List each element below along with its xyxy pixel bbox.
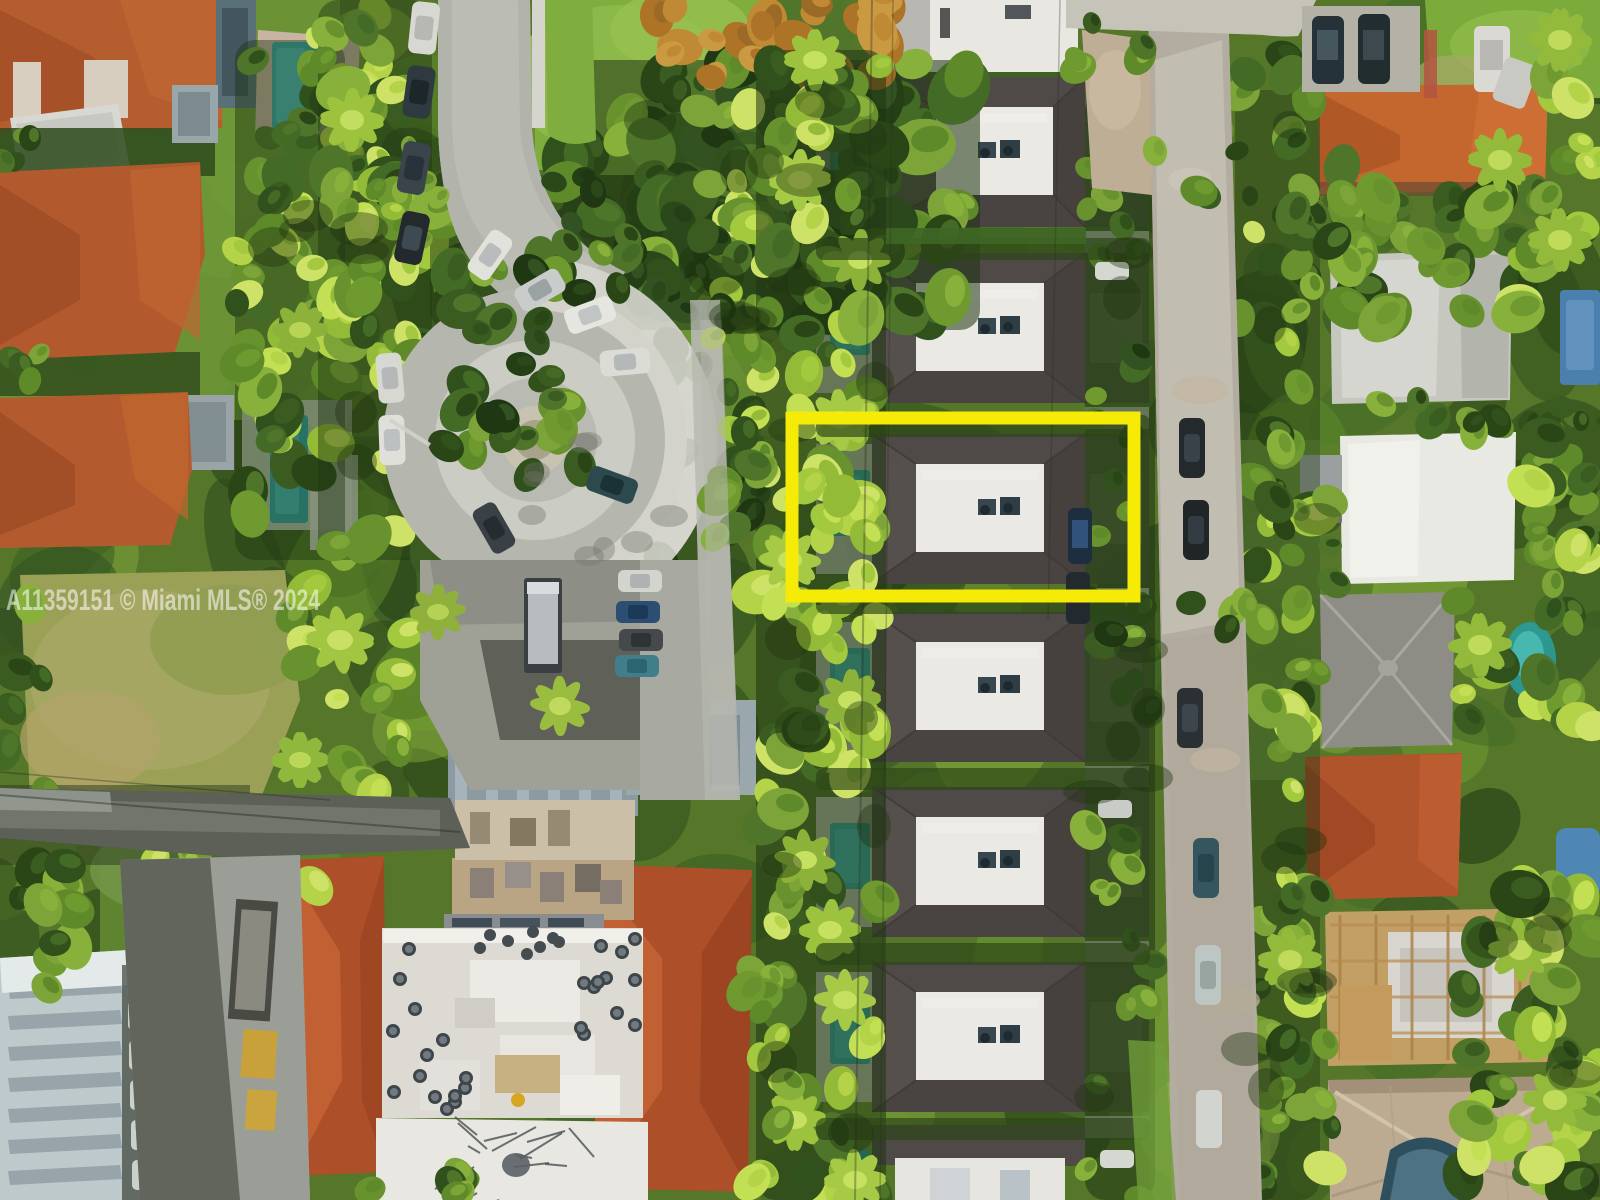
svg-text:A11359151 © Miami MLS® 2024: A11359151 © Miami MLS® 2024 [6,584,320,617]
